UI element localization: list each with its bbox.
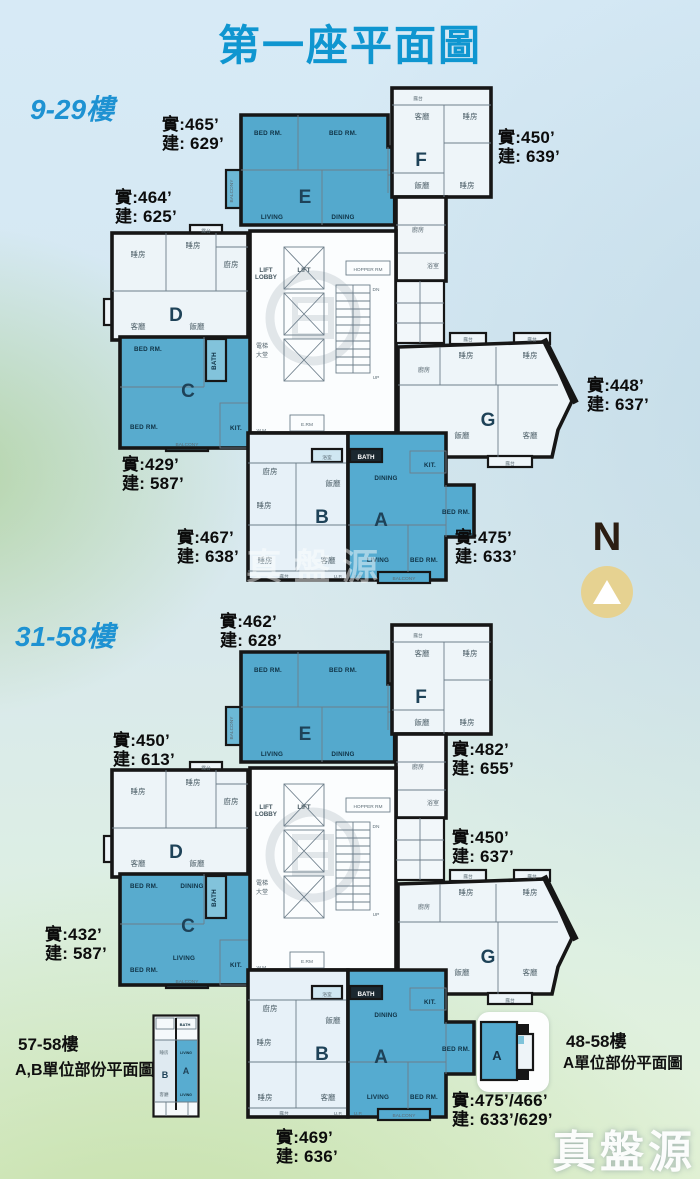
unit-letter: B <box>315 507 329 528</box>
room-label: 客廳 <box>523 430 538 440</box>
room-label: BED RM. <box>130 424 158 431</box>
room-label: DINING <box>331 214 354 221</box>
room-label: BED RM. <box>329 130 357 137</box>
unit-letter: A <box>374 1047 388 1068</box>
inset-plan-ab: BATH 睡房 LIVING B A 客廳 LIVING <box>152 1014 200 1118</box>
room-label: DINING <box>374 475 397 482</box>
compass-icon <box>581 566 633 618</box>
area-actual: 實:450’ <box>113 731 175 750</box>
room-label: KIT. <box>424 999 436 1006</box>
area-label-p1-a: 實:475’ 建: 633’ <box>455 528 517 566</box>
inset-plan-a: A <box>477 1012 549 1092</box>
unit-c: BED RM. BATH C BED RM. KIT. BALCONY <box>120 337 252 451</box>
area-label-p1-d: 實:464’ 建: 625’ <box>115 188 177 226</box>
room-label: LIVING <box>180 1051 192 1055</box>
room-label: U.P. <box>334 1111 343 1117</box>
room-label: 露台 <box>413 632 423 639</box>
room-label: 飯廳 <box>190 321 205 331</box>
area-actual: 實:475’/466’ <box>452 1091 553 1110</box>
inset-right-line1: 48-58樓 <box>566 1027 626 1052</box>
unit-letter: B <box>315 1044 329 1065</box>
area-label-p1-b: 實:467’ 建: 638’ <box>177 528 239 566</box>
room-label: HOPPER RM <box>353 804 382 810</box>
room-label: DINING <box>374 1012 397 1019</box>
room-label: UP <box>373 375 380 381</box>
room-label: 露台 <box>527 873 537 880</box>
area-actual: 實:462’ <box>220 612 282 631</box>
inset-right-line2: A單位部份平面圖 <box>563 1051 683 1073</box>
room-label: 飯廳 <box>415 180 430 190</box>
unit-f: 露台 客廳 睡房 F 飯廳 睡房 廚房 浴室 <box>392 625 491 818</box>
room-label: 睡房 <box>459 887 474 897</box>
room-label: BED RM. <box>134 346 162 353</box>
room-label: BED RM. <box>410 557 438 564</box>
room-label: LIVING <box>180 1093 192 1097</box>
room-label: 睡房 <box>257 500 272 510</box>
room-label: LOBBY <box>255 274 278 281</box>
area-actual: 實:450’ <box>498 128 560 147</box>
room-label: 廚房 <box>263 466 278 476</box>
compass: N <box>577 516 637 618</box>
room-label: 電梯 <box>256 342 268 350</box>
room-label: BATH <box>180 1022 191 1027</box>
unit-letter: F <box>415 687 427 708</box>
room-label: BALCONY <box>176 979 200 985</box>
room-label: LIVING <box>261 751 283 758</box>
room-label: 睡房 <box>186 777 201 787</box>
area-label-p2-e: 實:462’ 建: 628’ <box>220 612 282 650</box>
room-label: KIT. <box>424 462 436 469</box>
area-label-p2-g: 實:450’ 建: 637’ <box>452 828 514 866</box>
inset-left-line2: A,B單位部份平面圖 <box>15 1056 155 1080</box>
room-label: 廚房 <box>418 366 430 374</box>
area-actual: 實:469’ <box>276 1128 338 1147</box>
room-label: 飯廳 <box>455 967 470 977</box>
room-label: 睡房 <box>463 648 478 658</box>
unit-letter: E <box>299 724 312 745</box>
room-label: LIFT <box>259 804 272 811</box>
room-label: BED RM. <box>254 130 282 137</box>
unit-f: 露台 客廳 睡房 F 飯廳 睡房 廚房 浴室 <box>392 88 491 281</box>
unit-letter: G <box>481 410 496 431</box>
unit-b: 廚房 浴室 飯廳 睡房 B 睡房 客廳 露台 U.P. <box>248 970 348 1117</box>
inset-plan-a-card: A <box>477 1012 549 1092</box>
unit-letter: G <box>481 947 496 968</box>
area-label-p2-b: 實:469’ 建: 636’ <box>276 1128 338 1166</box>
area-gross: 建: 628’ <box>220 631 282 650</box>
room-label: 大堂 <box>256 888 268 896</box>
unit-letter: A <box>374 510 388 531</box>
room-label: 廚房 <box>224 259 239 269</box>
area-label-p2-a: 實:475’/466’ 建: 633’/629’ <box>452 1091 553 1129</box>
area-actual: 實:432’ <box>45 925 107 944</box>
room-label: UP <box>373 912 380 918</box>
unit-letter: A <box>492 1048 502 1063</box>
room-label: U.P. <box>354 1111 363 1117</box>
unit-letter: B <box>162 1070 169 1080</box>
unit-letter: F <box>415 150 427 171</box>
room-label: DN <box>373 824 380 830</box>
room-label: 客廳 <box>160 1091 169 1098</box>
room-label: DINING <box>331 751 354 758</box>
room-label: DN <box>373 287 380 293</box>
area-label-p2-d: 實:450’ 建: 613’ <box>113 731 175 769</box>
room-label: 浴室 <box>322 991 332 998</box>
room-label: 睡房 <box>131 786 146 796</box>
room-label: BATH <box>211 352 218 370</box>
room-label: KIT. <box>230 425 242 432</box>
room-label: 睡房 <box>523 350 538 360</box>
area-gross: 建: 625’ <box>115 207 177 226</box>
unit-d: 露台 睡房 睡房 廚房 D 客廳 飯廳 <box>104 225 248 340</box>
room-label: 飯廳 <box>326 1015 341 1025</box>
room-label: 露台 <box>505 460 515 467</box>
area-gross: 建: 638’ <box>177 547 239 566</box>
area-gross: 建: 629’ <box>162 134 224 153</box>
room-label: 睡房 <box>460 717 475 727</box>
room-label: HOPPER RM <box>353 267 382 273</box>
room-label: 睡房 <box>523 887 538 897</box>
unit-c: BED RM. DINING BATH C LIVING BED RM. KIT… <box>120 874 252 988</box>
room-label: 露台 <box>201 765 211 772</box>
room-label: BED RM. <box>442 509 470 516</box>
page-title: 第一座平面圖 <box>0 12 700 73</box>
room-label: 廚房 <box>224 796 239 806</box>
room-label: 大堂 <box>256 351 268 359</box>
inset-left-line1: 57-58樓 <box>18 1030 78 1055</box>
room-label: BED RM. <box>442 1046 470 1053</box>
room-label: 客廳 <box>131 858 146 868</box>
room-label: BALCONY <box>176 442 200 448</box>
room-label: 廚房 <box>412 763 424 771</box>
room-label: BALCONY <box>229 179 235 203</box>
area-label-p1-f: 實:450’ 建: 639’ <box>498 128 560 166</box>
room-label: KIT. <box>230 962 242 969</box>
room-label: 睡房 <box>131 249 146 259</box>
room-label: 露台 <box>505 997 515 1004</box>
unit-letter: E <box>299 187 312 208</box>
brand-watermark: 真盤源 <box>552 1116 696 1179</box>
room-label: 廚房 <box>263 1003 278 1013</box>
area-label-p2-c: 實:432’ 建: 587’ <box>45 925 107 963</box>
north-arrow-icon <box>593 580 621 604</box>
room-label: 睡房 <box>463 111 478 121</box>
area-gross: 建: 637’ <box>587 395 649 414</box>
room-label: 浴室 <box>322 454 332 461</box>
area-gross: 建: 655’ <box>452 759 514 778</box>
area-actual: 實:482’ <box>452 740 514 759</box>
area-gross: 建: 633’ <box>455 547 517 566</box>
unit-d: 露台 睡房 睡房 廚房 D 客廳 飯廳 <box>104 762 248 877</box>
room-label: 露台 <box>279 1110 289 1117</box>
room-label: BED RM. <box>130 967 158 974</box>
room-label: 客廳 <box>321 1092 336 1102</box>
room-label: BATH <box>357 991 374 998</box>
room-label: E.RM <box>301 959 313 965</box>
area-actual: 實:429’ <box>122 455 184 474</box>
area-actual: 實:467’ <box>177 528 239 547</box>
room-label: E.RM <box>301 422 313 428</box>
room-label: LIVING <box>173 955 195 962</box>
room-label: 睡房 <box>160 1049 169 1056</box>
room-label: 客廳 <box>415 111 430 121</box>
room-label: 飯廳 <box>190 858 205 868</box>
room-label: 廚房 <box>412 226 424 234</box>
room-label: 電梯 <box>256 879 268 887</box>
room-label: 露台 <box>463 336 473 343</box>
unit-letter: A <box>183 1066 190 1076</box>
room-label: 廚房 <box>418 903 430 911</box>
room-label: 睡房 <box>459 350 474 360</box>
room-label: BED RM. <box>130 883 158 890</box>
unit-letter: D <box>169 305 183 326</box>
room-label: 浴室 <box>427 262 439 270</box>
unit-letter: C <box>181 916 195 937</box>
room-label: BED RM. <box>329 667 357 674</box>
room-label: 浴室 <box>427 799 439 807</box>
room-label: 飯廳 <box>326 478 341 488</box>
compass-label: N <box>577 516 637 558</box>
room-label: 露台 <box>463 873 473 880</box>
room-label: BED RM. <box>254 667 282 674</box>
room-label: 睡房 <box>257 1037 272 1047</box>
area-actual: 實:450’ <box>452 828 514 847</box>
unit-letter: D <box>169 842 183 863</box>
area-label-p2-f: 實:482’ 建: 655’ <box>452 740 514 778</box>
ghost-watermark: 真盤源 <box>246 538 390 590</box>
area-actual: 實:465’ <box>162 115 224 134</box>
area-gross: 建: 613’ <box>113 750 175 769</box>
room-label: BATH <box>211 889 218 907</box>
area-label-p1-c: 實:429’ 建: 587’ <box>122 455 184 493</box>
room-label: BED RM. <box>410 1094 438 1101</box>
room-label: 露台 <box>527 336 537 343</box>
room-label: 飯廳 <box>415 717 430 727</box>
area-label-p1-g: 實:448’ 建: 637’ <box>587 376 649 414</box>
room-label: DINING <box>180 883 203 890</box>
page: 第一座平面圖 9-29樓 31-58樓 露台 睡房 睡房 廚房 D 客廳 飯廳 … <box>0 0 700 1179</box>
area-gross: 建: 587’ <box>45 944 107 963</box>
area-gross: 建: 587’ <box>122 474 184 493</box>
area-actual: 實:464’ <box>115 188 177 207</box>
room-label: BALCONY <box>393 1113 417 1119</box>
room-label: 露台 <box>201 228 211 235</box>
room-label: 客廳 <box>131 321 146 331</box>
area-gross: 建: 636’ <box>276 1147 338 1166</box>
room-label: LIVING <box>261 214 283 221</box>
room-label: 客廳 <box>415 648 430 658</box>
room-label: 飯廳 <box>455 430 470 440</box>
room-label: 睡房 <box>186 240 201 250</box>
room-label: LIFT <box>259 267 272 274</box>
room-label: 睡房 <box>460 180 475 190</box>
room-label: BATH <box>357 454 374 461</box>
area-gross: 建: 633’/629’ <box>452 1110 553 1129</box>
area-actual: 實:475’ <box>455 528 517 547</box>
room-label: 露台 <box>413 95 423 102</box>
area-gross: 建: 639’ <box>498 147 560 166</box>
room-label: LIVING <box>367 1094 389 1101</box>
room-label: BALCONY <box>229 716 235 740</box>
room-label: LOBBY <box>255 811 278 818</box>
area-gross: 建: 637’ <box>452 847 514 866</box>
room-label: BALCONY <box>393 576 417 582</box>
area-actual: 實:448’ <box>587 376 649 395</box>
room-label: 客廳 <box>523 967 538 977</box>
room-label: 睡房 <box>258 1092 273 1102</box>
area-label-p1-e: 實:465’ 建: 629’ <box>162 115 224 153</box>
unit-letter: C <box>181 381 195 402</box>
